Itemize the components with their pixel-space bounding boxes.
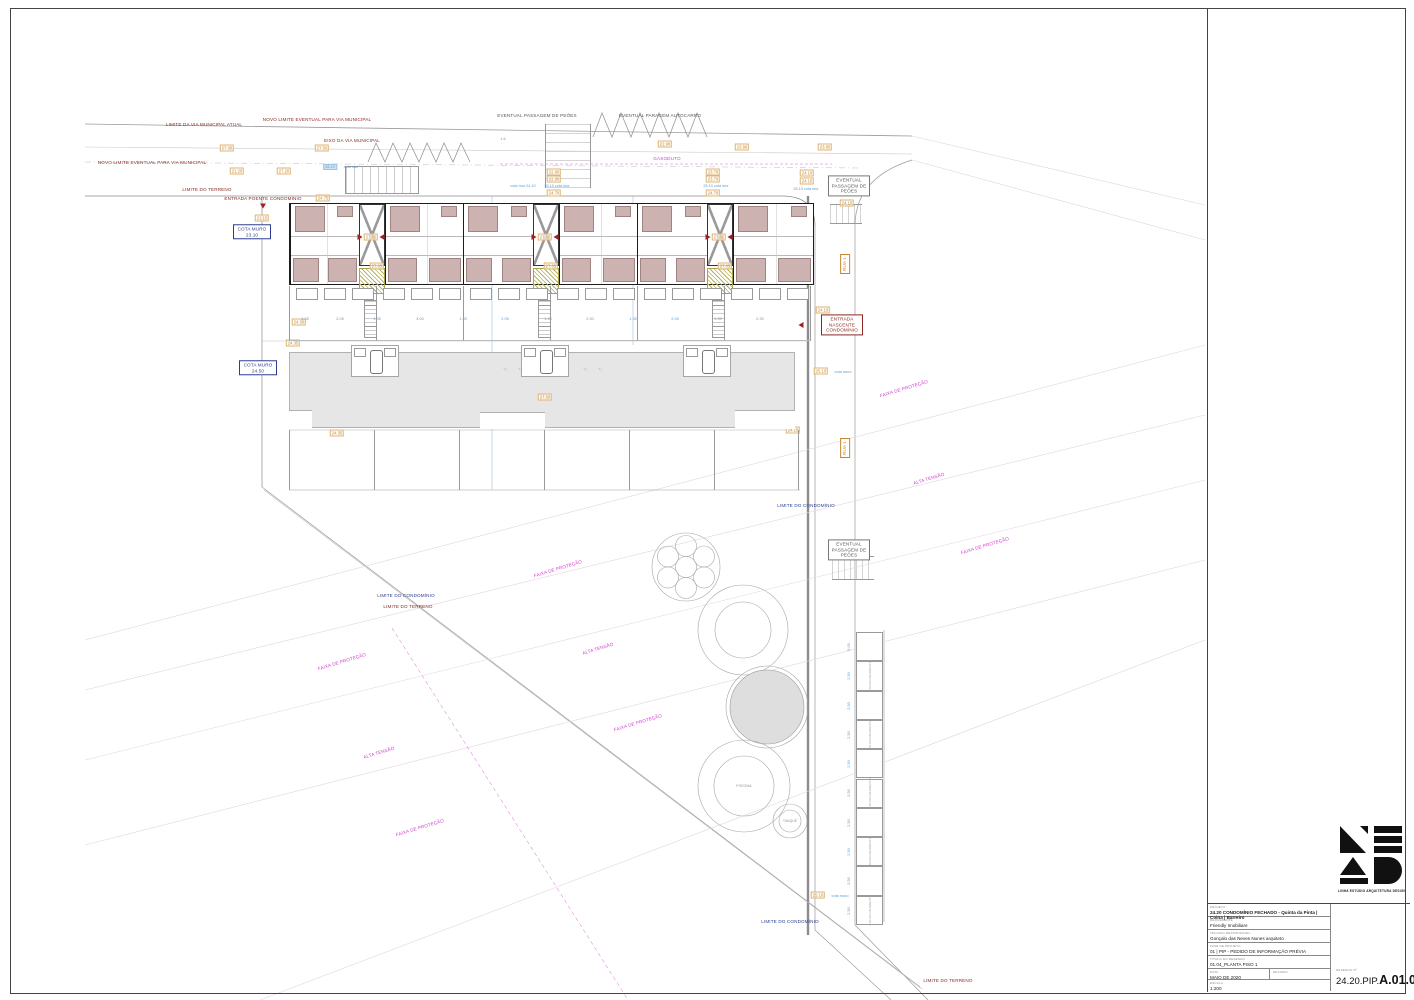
- sheet-frame: [10, 8, 1406, 994]
- drawing-sheet: EVENTUAL PASSAGEM DE PEÕESEVENTUAL PARAG…: [0, 0, 1414, 1000]
- sheet-column-divider: [1207, 8, 1208, 992]
